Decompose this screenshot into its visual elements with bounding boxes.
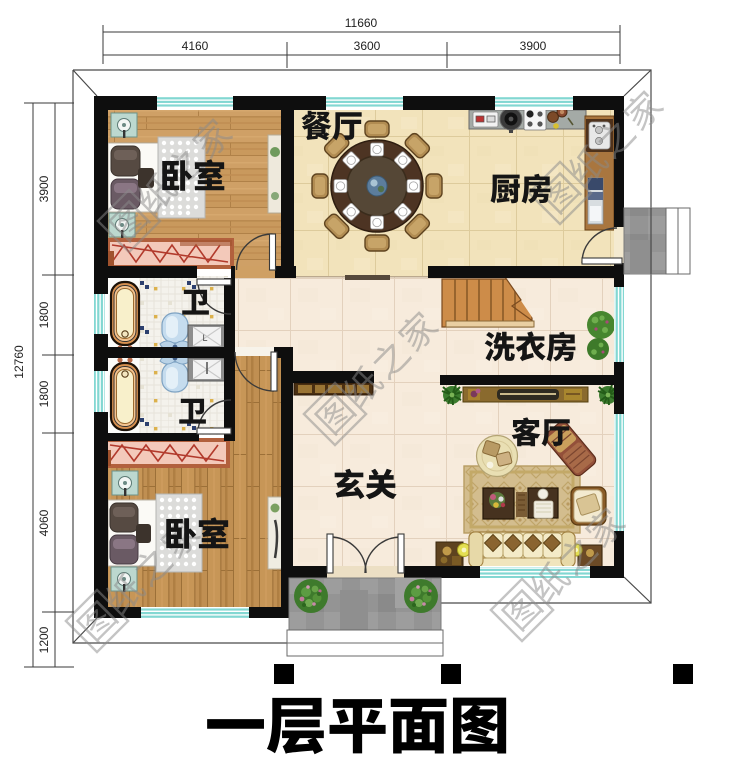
svg-text:11660: 11660 (345, 16, 378, 30)
svg-text:L: L (202, 333, 207, 343)
svg-text:3900: 3900 (37, 175, 51, 202)
svg-text:1800: 1800 (37, 301, 51, 328)
svg-text:1200: 1200 (37, 626, 51, 653)
svg-text:4160: 4160 (182, 39, 209, 53)
svg-text:1800: 1800 (37, 380, 51, 407)
svg-text:3600: 3600 (354, 39, 381, 53)
svg-text:4060: 4060 (37, 509, 51, 536)
svg-text:3900: 3900 (520, 39, 547, 53)
svg-text:12760: 12760 (12, 345, 26, 379)
